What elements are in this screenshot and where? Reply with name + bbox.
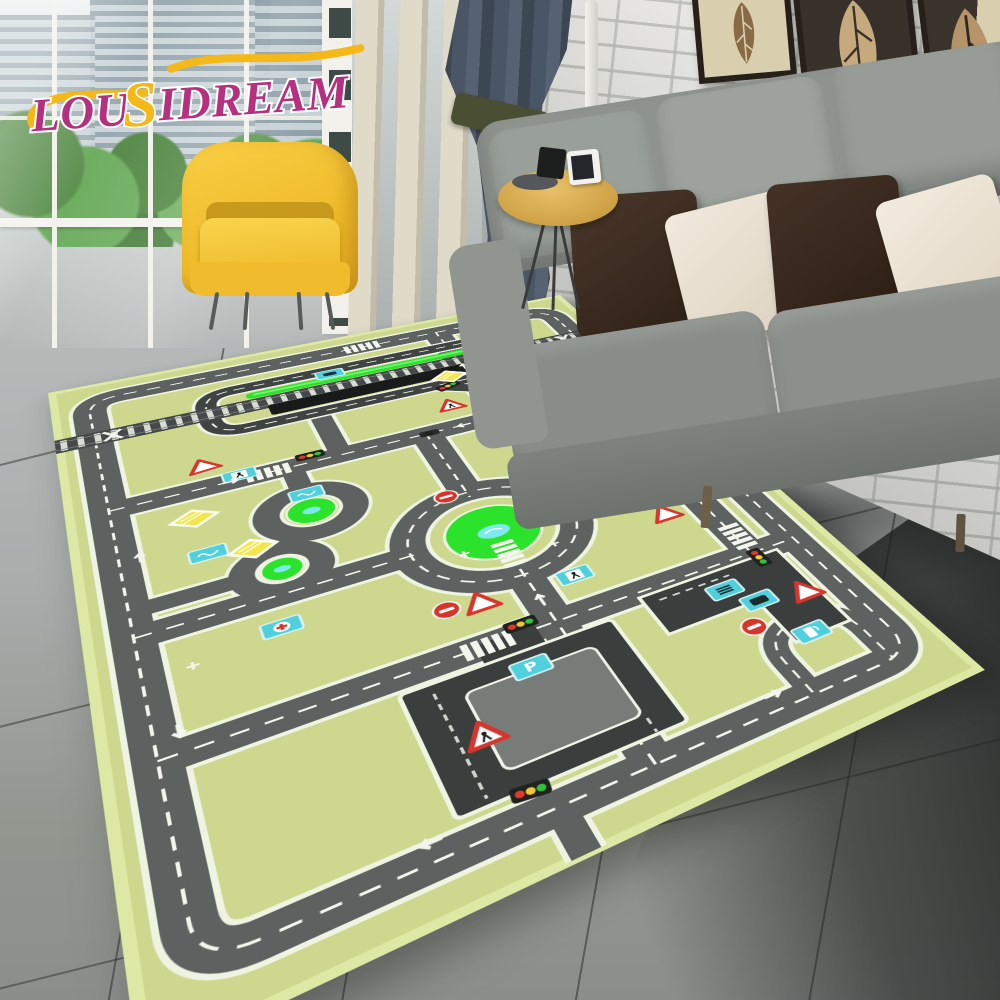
flip-clock [566,148,601,185]
armchair-leg [209,292,220,330]
table-leg [521,221,546,309]
sofa-leg [955,514,965,552]
yellow-armchair [182,142,358,334]
armchair-leg [325,292,336,330]
side-table [498,158,622,318]
leaf-icon [698,0,791,78]
logo-text-s: S [120,68,160,141]
brand-logo: LOU S IDREAM [20,40,368,152]
black-speaker [536,146,566,179]
table-leg [559,221,581,310]
armchair-leg [243,292,250,330]
logo-swoosh-icon [171,48,361,69]
armchair-front [190,262,350,296]
logo-text-suffix: IDREAM [155,66,352,131]
leaf-art-frame [691,0,797,84]
logo-text-prefix: LOU [28,83,133,142]
table-leg [551,220,557,310]
product-photo-scene: P [0,0,1000,1000]
armchair-leg [297,292,304,330]
